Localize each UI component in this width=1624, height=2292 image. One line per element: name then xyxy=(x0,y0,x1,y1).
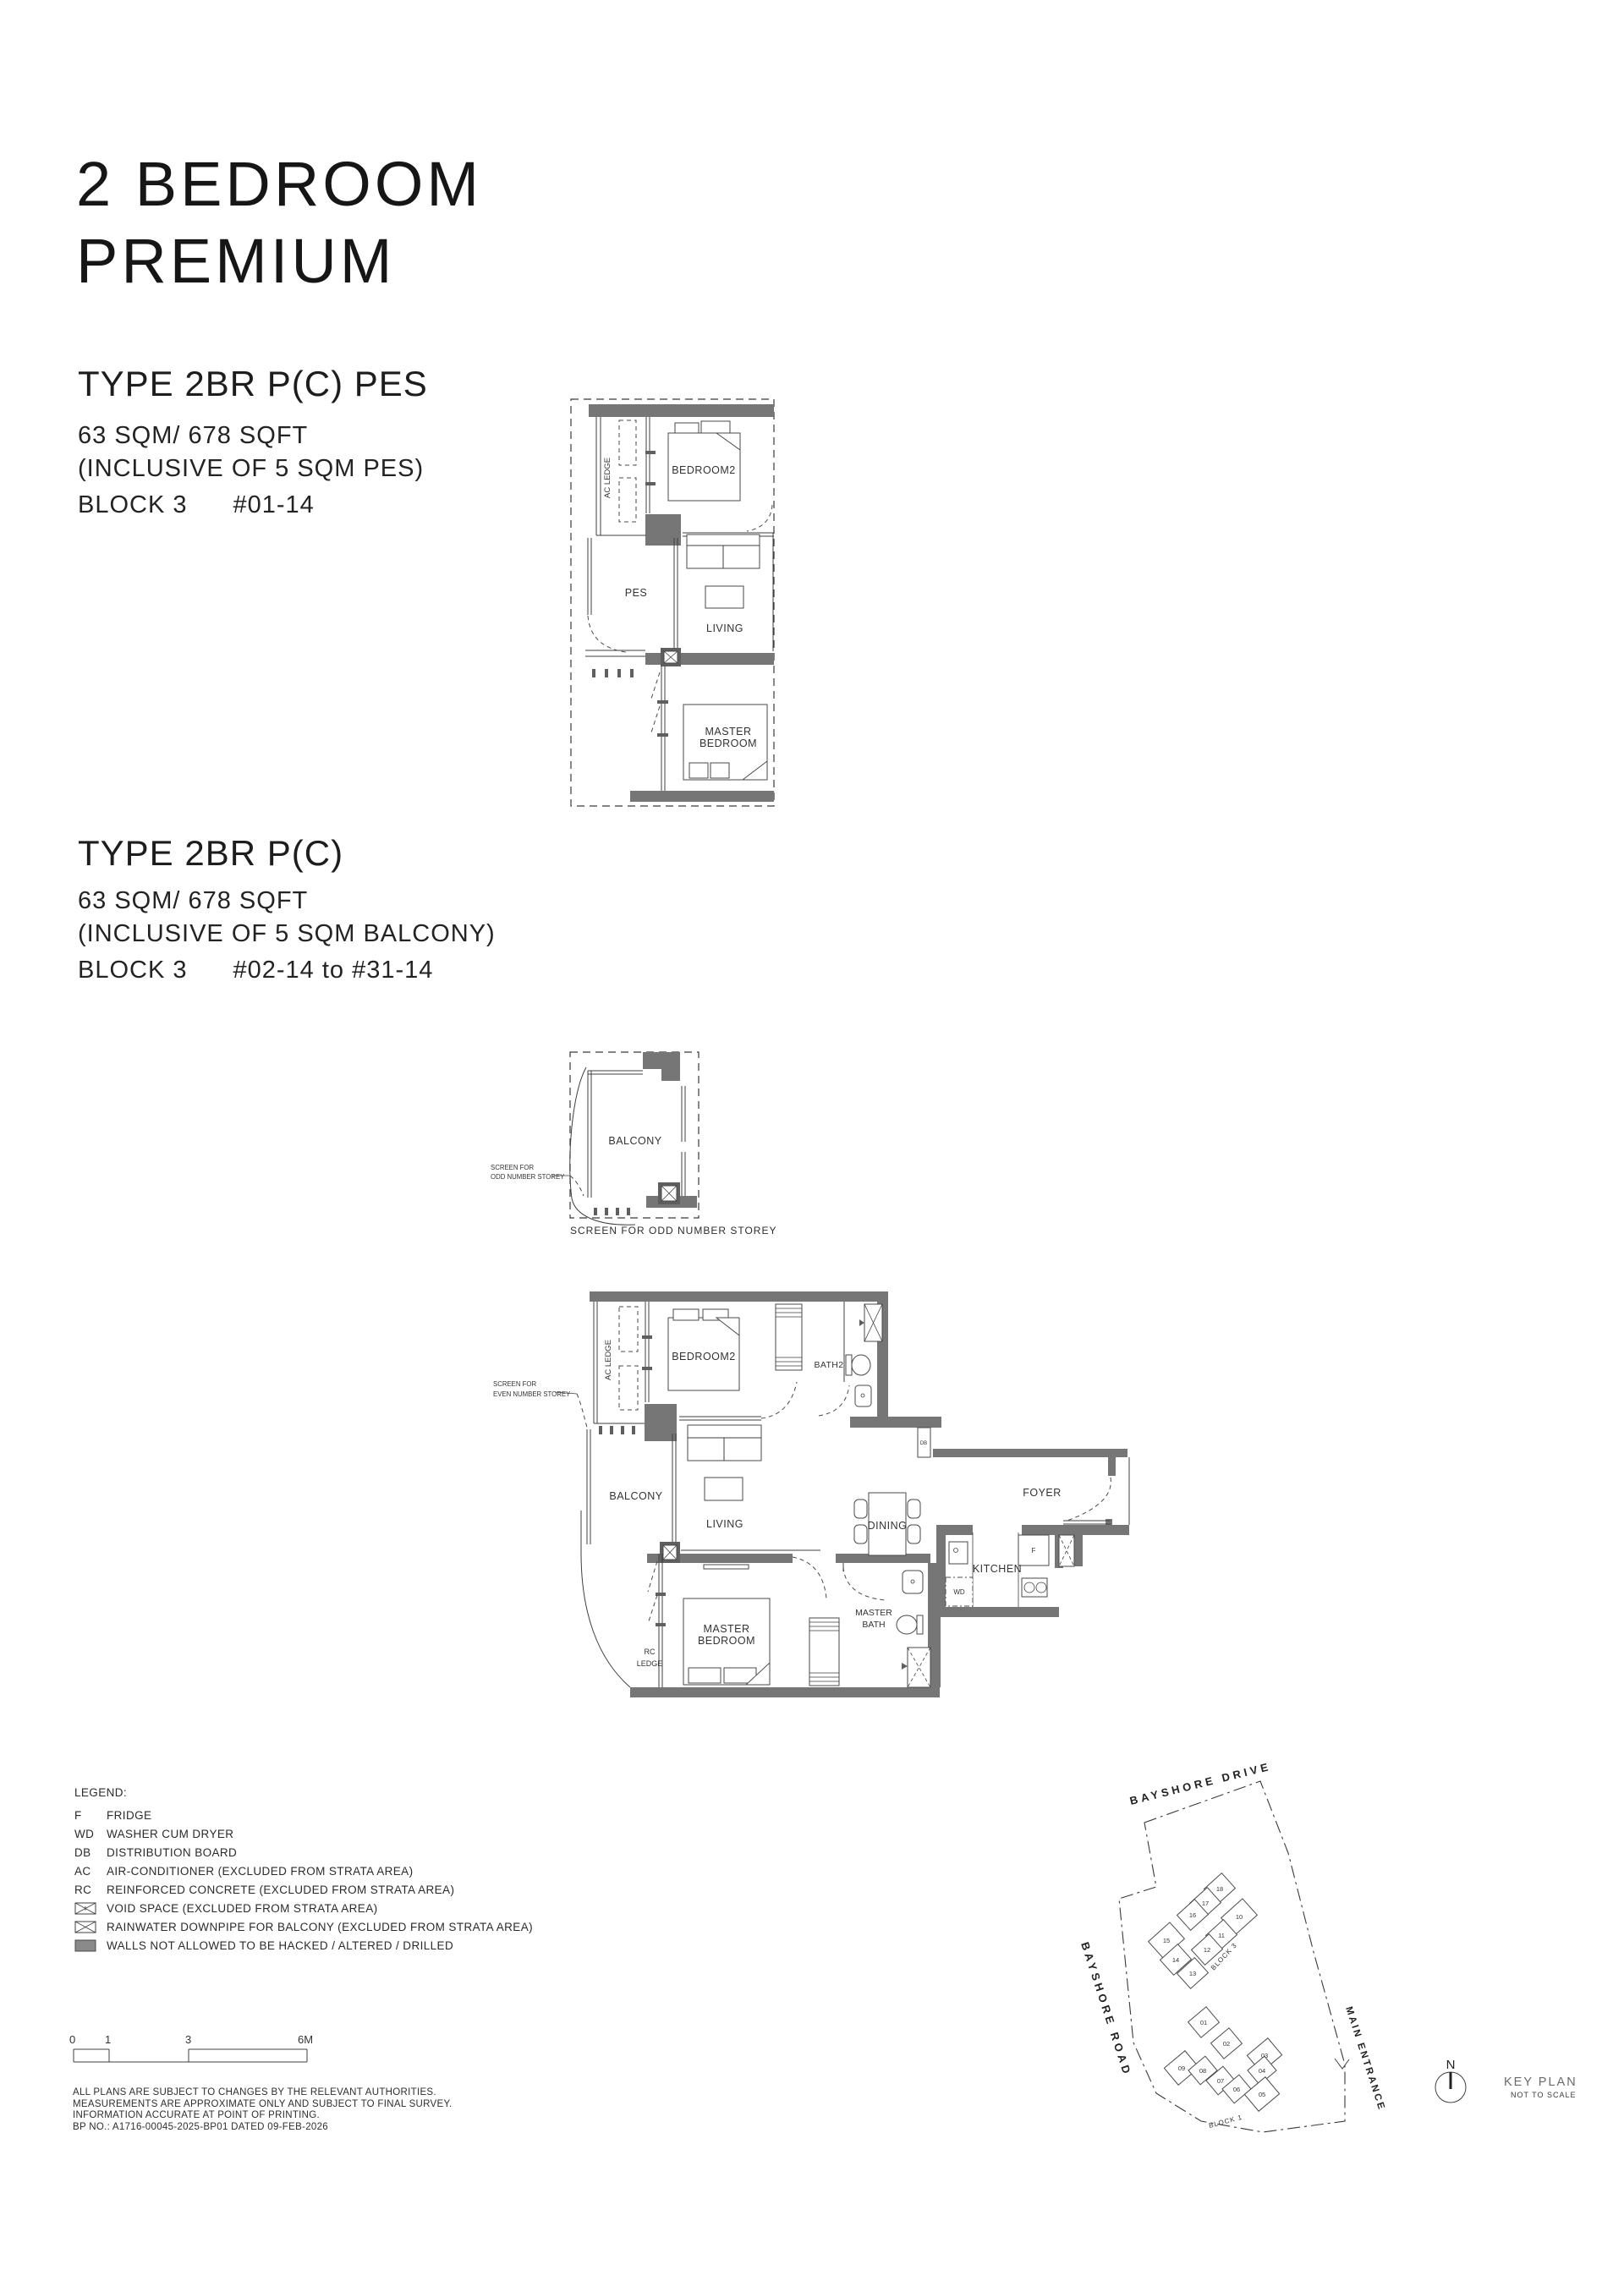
legend-text: WALLS NOT ALLOWED TO BE HACKED / ALTERED… xyxy=(107,1939,453,1952)
block1-label: BLOCK 1 xyxy=(1208,2114,1243,2130)
room-label-living: LIVING xyxy=(706,1518,743,1530)
unit-number: 03 xyxy=(1261,2052,1268,2059)
legend-text: AIR-CONDITIONER (EXCLUDED FROM STRATA AR… xyxy=(107,1865,413,1878)
unit-number-highlighted: 14 xyxy=(1172,1956,1179,1964)
unit-number: 18 xyxy=(1216,1885,1223,1893)
scale-label-1: 1 xyxy=(105,2033,111,2046)
ac-ledge: AC LEDGE xyxy=(596,417,646,535)
type-std-block: BLOCK 3 xyxy=(78,957,188,984)
north-label: N xyxy=(1446,2058,1456,2072)
screen-annotation: SCREEN FOR EVEN NUMBER STOREY xyxy=(493,1380,588,1430)
legend-key: F xyxy=(74,1809,107,1822)
legend-row: RC REINFORCED CONCRETE (EXCLUDED FROM ST… xyxy=(74,1880,533,1899)
legend-text: RAINWATER DOWNPIPE FOR BALCONY (EXCLUDED… xyxy=(107,1921,533,1933)
room-label-master-2: BEDROOM xyxy=(698,1635,755,1647)
void-box-icon xyxy=(658,1182,680,1204)
type-pes-units: #01-14 xyxy=(233,491,315,519)
bedroom2: BEDROOM2 xyxy=(642,1302,802,1420)
page-title: 2 BEDROOM PREMIUM xyxy=(76,145,482,299)
unit-number: 16 xyxy=(1189,1911,1196,1919)
type-std-inclusive: (INCLUSIVE OF 5 SQM BALCONY) xyxy=(78,920,496,948)
unit-number: 15 xyxy=(1163,1937,1170,1944)
unit-number: 06 xyxy=(1233,2086,1240,2093)
room-label-master-2: BEDROOM xyxy=(700,737,757,749)
wardrobe xyxy=(809,1618,839,1686)
unit-number: 13 xyxy=(1189,1970,1196,1977)
block3-cluster: 18 17 16 10 15 11 12 14 13 BLOCK 3 xyxy=(1149,1873,1258,1989)
basin xyxy=(903,1571,923,1593)
room-label-master-bath-2: BATH xyxy=(862,1620,885,1630)
wd-tag: WD xyxy=(953,1588,965,1596)
legend-text: DISTRIBUTION BOARD xyxy=(107,1846,237,1859)
room-label-bedroom2: BEDROOM2 xyxy=(672,1351,736,1363)
void-box-kitchen xyxy=(1059,1535,1074,1566)
type-std-area: 63 SQM/ 678 SQFT xyxy=(78,887,308,915)
legend-row: RAINWATER DOWNPIPE FOR BALCONY (EXCLUDED… xyxy=(74,1917,533,1936)
basin xyxy=(855,1385,871,1406)
db-box: DB xyxy=(918,1428,930,1457)
kitchen: WD F KITCHEN xyxy=(946,1533,1049,1607)
annotation-line2: ODD NUMBER STOREY xyxy=(491,1173,565,1181)
legend-row: DB DISTRIBUTION BOARD xyxy=(74,1843,533,1862)
room-label-master-1: MASTER xyxy=(703,1623,749,1635)
unit-number: 11 xyxy=(1218,1932,1225,1939)
room-label-ac-ledge: AC LEDGE xyxy=(603,458,612,498)
unit-number: 09 xyxy=(1178,2064,1185,2072)
bath2: BATH2 xyxy=(814,1302,882,1416)
unit-number: 10 xyxy=(1236,1913,1243,1921)
unit-number: 12 xyxy=(1204,1946,1210,1954)
block1-cluster: 01 02 03 09 08 07 04 06 05 BLOCK 1 xyxy=(1164,2007,1281,2130)
floorplan-main: SCREEN FOR EVEN NUMBER STOREY AC LEDGE B… xyxy=(470,1257,1147,1730)
ac-ledge: AC LEDGE xyxy=(594,1302,645,1423)
rainwater-downpipe-icon xyxy=(74,1921,107,1933)
disclaimer: ALL PLANS ARE SUBJECT TO CHANGES BY THE … xyxy=(73,2087,452,2133)
master-bedroom: MASTER BEDROOM xyxy=(651,666,767,791)
toilet xyxy=(897,1615,917,1634)
unit-number: 01 xyxy=(1200,2019,1207,2026)
wardrobe xyxy=(776,1304,802,1370)
legend-key: RC xyxy=(74,1883,107,1896)
scale-label-0: 0 xyxy=(69,2033,75,2046)
room-label-balcony: BALCONY xyxy=(609,1490,662,1502)
annotation-line1: SCREEN FOR xyxy=(493,1380,536,1388)
scale-bar: 0 1 3 6M xyxy=(68,2032,321,2070)
page-title-line1: 2 BEDROOM xyxy=(76,145,482,222)
room-label-bedroom2: BEDROOM2 xyxy=(672,464,736,476)
room-label-bath2: BATH2 xyxy=(814,1360,843,1370)
key-plan-subtitle: NOT TO SCALE xyxy=(1511,2091,1577,2099)
north-indicator: N xyxy=(1435,2058,1466,2103)
legend-row: WALLS NOT ALLOWED TO BE HACKED / ALTERED… xyxy=(74,1936,533,1955)
living: LIVING xyxy=(681,1425,820,1569)
legend-row: F FRIDGE xyxy=(74,1806,533,1824)
legend-key: WD xyxy=(74,1828,107,1840)
toilet xyxy=(852,1355,870,1375)
legend-text: FRIDGE xyxy=(107,1809,151,1822)
unit-number: 17 xyxy=(1202,1900,1209,1907)
unit-number: 08 xyxy=(1199,2067,1206,2075)
disclaimer-line1: ALL PLANS ARE SUBJECT TO CHANGES BY THE … xyxy=(73,2087,452,2099)
type-pes-name: TYPE 2BR P(C) PES xyxy=(78,364,428,404)
unit-number: 04 xyxy=(1259,2067,1265,2075)
scale-label-3: 3 xyxy=(185,2033,191,2046)
room-label-kitchen: KITCHEN xyxy=(973,1563,1022,1575)
legend-row: AC AIR-CONDITIONER (EXCLUDED FROM STRATA… xyxy=(74,1862,533,1880)
unit-number: 07 xyxy=(1217,2077,1224,2085)
legend: LEGEND: F FRIDGE WD WASHER CUM DRYER DB … xyxy=(74,1786,533,1955)
unit-number: 05 xyxy=(1259,2091,1265,2098)
disclaimer-line2: MEASUREMENTS ARE APPROXIMATE ONLY AND SU… xyxy=(73,2099,452,2111)
room-label-dining: DINING xyxy=(868,1520,908,1532)
tv-console xyxy=(704,1565,749,1569)
coffee-table xyxy=(705,1478,743,1500)
entrance-arrow-icon xyxy=(1335,2059,1349,2069)
master-bedroom: MASTER BEDROOM xyxy=(648,1554,839,1687)
room-label-pes: PES xyxy=(625,587,648,599)
legend-row: WD WASHER CUM DRYER xyxy=(74,1824,533,1843)
dining: DINING xyxy=(854,1493,920,1555)
hob xyxy=(949,1542,968,1564)
legend-title: LEGEND: xyxy=(74,1786,533,1799)
floorplan-sheet: 2 BEDROOM PREMIUM TYPE 2BR P(C) PES 63 S… xyxy=(0,0,1624,2292)
legend-key: DB xyxy=(74,1846,107,1859)
scale-label-6m: 6M xyxy=(298,2033,313,2046)
unit-number: 02 xyxy=(1223,2040,1230,2048)
type-std-name: TYPE 2BR P(C) xyxy=(78,833,343,874)
room-label-master-bath-1: MASTER xyxy=(855,1608,892,1618)
room-label-foyer: FOYER xyxy=(1023,1487,1062,1499)
hacked-wall-icon xyxy=(74,1939,107,1952)
road-label-bayshore-drive: BAYSHORE DRIVE xyxy=(1128,1760,1272,1807)
master-bath: MASTER BATH xyxy=(843,1563,923,1634)
void-space-icon xyxy=(74,1902,107,1915)
coffee-table xyxy=(705,586,743,608)
room-label-master-1: MASTER xyxy=(705,726,751,737)
page-title-line2: PREMIUM xyxy=(76,222,482,299)
room-label-balcony: BALCONY xyxy=(608,1135,661,1147)
road-label-bayshore-road: BAYSHORE ROAD xyxy=(1078,1940,1134,2078)
balcony-screen-detail: BALCONY SCREEN FOR ODD NUMBER STOREY SCR… xyxy=(470,1034,765,1240)
main-entrance-label: MAIN ENTRANCE xyxy=(1343,2005,1386,2112)
disclaimer-line4: BP NO.: A1716-00045-2025-BP01 DATED 09-F… xyxy=(73,2122,452,2134)
type-pes-area: 63 SQM/ 678 SQFT xyxy=(78,422,308,450)
f-tag: F xyxy=(1032,1547,1036,1555)
key-plan: BAYSHORE DRIVE BAYSHORE ROAD MAIN ENTRAN… xyxy=(998,1757,1624,2180)
void-box-master-bath xyxy=(902,1648,930,1687)
db-tag: DB xyxy=(920,1441,927,1446)
room-label-rc-1: RC xyxy=(645,1648,656,1656)
room-label-living: LIVING xyxy=(706,622,743,634)
void-box-balcony xyxy=(660,1542,680,1563)
legend-row: VOID SPACE (EXCLUDED FROM STRATA AREA) xyxy=(74,1899,533,1917)
type-pes-block-line: BLOCK 3#01-14 xyxy=(78,491,315,519)
type-std-units: #02-14 to #31-14 xyxy=(233,957,434,984)
disclaimer-line3: INFORMATION ACCURATE AT POINT OF PRINTIN… xyxy=(73,2110,452,2122)
legend-text: VOID SPACE (EXCLUDED FROM STRATA AREA) xyxy=(107,1902,378,1915)
living: LIVING xyxy=(687,533,773,651)
floorplan-pes: AC LEDGE BEDROOM2 LIVING xyxy=(533,372,787,829)
room-label-ac-ledge: AC LEDGE xyxy=(604,1340,613,1380)
type-pes-block: BLOCK 3 xyxy=(78,491,188,518)
type-std-block-line: BLOCK 3#02-14 to #31-14 xyxy=(78,957,433,984)
legend-text: WASHER CUM DRYER xyxy=(107,1828,233,1840)
legend-key: AC xyxy=(74,1865,107,1878)
key-plan-title: KEY PLAN xyxy=(1504,2075,1577,2089)
annotation-line1: SCREEN FOR xyxy=(491,1164,534,1171)
type-pes-inclusive: (INCLUSIVE OF 5 SQM PES) xyxy=(78,455,424,483)
annotation-line2: EVEN NUMBER STOREY xyxy=(493,1390,571,1398)
legend-text: REINFORCED CONCRETE (EXCLUDED FROM STRAT… xyxy=(107,1883,454,1896)
void-box-icon xyxy=(661,648,681,666)
detail-caption: SCREEN FOR ODD NUMBER STOREY xyxy=(570,1225,776,1236)
